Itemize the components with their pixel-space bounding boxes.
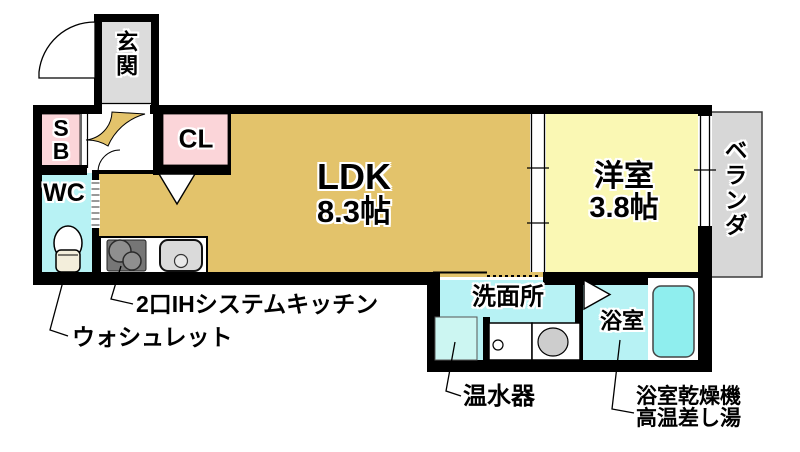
bath-features-annotation: 浴室乾燥機 高温差し湯 bbox=[636, 386, 741, 430]
washing-machine-knob-icon bbox=[493, 340, 503, 350]
western-room-size-label: 3.8帖 bbox=[589, 193, 658, 223]
genkan-label: 玄関 bbox=[114, 30, 137, 78]
vanity-basin-icon bbox=[538, 328, 568, 356]
western-room-label: 洋室 bbox=[589, 161, 658, 193]
shoe-box-label: SB bbox=[48, 117, 74, 163]
hot-water-line: 高温差し湯 bbox=[636, 408, 741, 430]
floor-plan: 玄関 SB CL WC LDK 8.3帖 洋室 3.8帖 ベランダ 洗面所 浴室… bbox=[0, 0, 800, 452]
water-heater-box bbox=[435, 317, 477, 360]
ldk-label-group: LDK 8.3帖 bbox=[317, 158, 391, 228]
kitchen-annotation: 2口IHシステムキッチン bbox=[136, 292, 378, 316]
sink-drain-icon bbox=[175, 255, 188, 268]
bath-dryer-line: 浴室乾燥機 bbox=[636, 386, 741, 408]
washlet-annotation: ウォシュレット bbox=[72, 325, 233, 349]
ldk-label: LDK bbox=[317, 158, 391, 196]
washroom-label: 洗面所 bbox=[472, 284, 544, 309]
veranda-label: ベランダ bbox=[722, 138, 746, 238]
entrance-door-swing bbox=[39, 22, 95, 78]
ldk-size-label: 8.3帖 bbox=[317, 196, 391, 229]
water-heater-annotation: 温水器 bbox=[463, 384, 535, 409]
bathtub-icon bbox=[653, 286, 694, 357]
western-room-label-group: 洋室 3.8帖 bbox=[589, 161, 658, 223]
toilet-seat-icon bbox=[56, 250, 80, 272]
ih-burner-icon bbox=[123, 252, 141, 270]
sliding-door bbox=[530, 114, 546, 272]
wc-label: WC bbox=[43, 180, 85, 206]
closet-label: CL bbox=[179, 125, 214, 152]
wc-door bbox=[91, 180, 100, 228]
bathroom-label: 浴室 bbox=[600, 309, 644, 332]
